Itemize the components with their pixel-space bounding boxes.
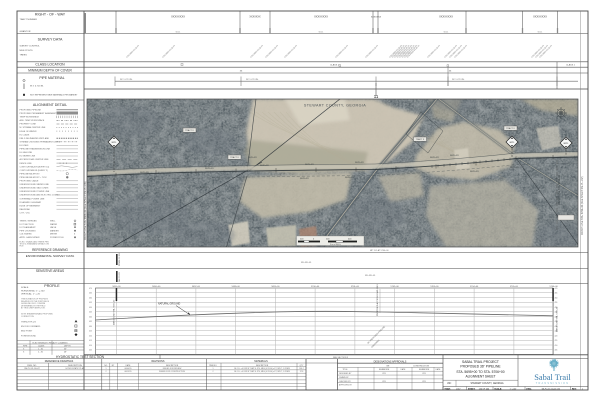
svg-text:561.1: 561.1	[319, 31, 324, 33]
svg-text:MILE POSTS: MILE POSTS	[20, 50, 34, 52]
svg-text:WL-WL-01: WL-WL-01	[365, 275, 376, 277]
svg-text:PROPOSED CABLE: PROPOSED CABLE	[20, 180, 40, 183]
svg-text:430: 430	[89, 326, 92, 328]
svg-text:W.T. 0.713 IN.: W.T. 0.713 IN.	[30, 86, 44, 88]
svg-text:ENVIRONMENTAL SURVEY DATA: ENVIRONMENTAL SURVEY DATA	[26, 254, 75, 258]
svg-text:REFERENCE DRAWING: REFERENCE DRAWING	[32, 248, 68, 252]
svg-text:CITY / LTD.: CITY / LTD.	[20, 213, 31, 215]
svg-text:136 OF 466: 136 OF 466	[479, 388, 490, 390]
svg-text:ELEV. MINIMUM 3 PENALTY CLEARI: ELEV. MINIMUM 3 PENALTY CLEARING	[33, 341, 68, 344]
svg-text:MATCH LINE STA. 5706+00: MATCH LINE STA. 5706+00	[556, 306, 559, 332]
svg-text:5699+00: 5699+00	[271, 286, 280, 288]
svg-text:ALIGNMENT DETAIL: ALIGNMENT DETAIL	[33, 103, 67, 107]
svg-text:SA-XX-001: SA-XX-001	[118, 271, 121, 282]
svg-text:405: 405	[555, 350, 558, 352]
svg-text:SCALE:: SCALE:	[494, 387, 502, 390]
svg-text:ISSUED FOR CONSTRUCTION: ISSUED FOR CONSTRUCTION	[159, 371, 186, 373]
svg-text:RIGHT - OF - WAY: RIGHT - OF - WAY	[35, 13, 66, 17]
svg-text:PIPE CROSSING: PIPE CROSSING	[20, 230, 37, 232]
svg-text:VERTICAL: 1" = 20': VERTICAL: 1" = 20'	[21, 293, 41, 296]
svg-text:CLASS 1: CLASS 1	[566, 63, 576, 66]
svg-text:ALIGNMENT SHEET: ALIGNMENT SHEET	[465, 374, 495, 378]
svg-text:TITLE: TITLE	[343, 369, 349, 371]
svg-text:FOREGROUND: FOREGROUND	[21, 335, 37, 337]
svg-text:PROPOSED ACCESS ROAD XING: PROPOSED ACCESS ROAD XING	[376, 284, 379, 316]
svg-text:425: 425	[89, 331, 92, 333]
svg-text:SIGNATURE: SIGNATURE	[379, 368, 390, 371]
svg-text:XXXXXXXX: XXXXXXXX	[533, 15, 547, 19]
svg-text:EDGE OF WATER: EDGE OF WATER	[20, 130, 37, 133]
svg-text:EL SEWER LINE: EL SEWER LINE	[20, 156, 36, 158]
svg-text:FENCE LINE: FENCE LINE	[20, 163, 33, 165]
svg-text:Sabal Trail: Sabal Trail	[534, 373, 571, 382]
svg-text:PIPELINE MILEPOST: PIPELINE MILEPOST	[20, 173, 41, 175]
svg-text:DOT EASEMENT: DOT EASEMENT	[20, 226, 37, 229]
svg-text:NOTE: BREAKERS/SAND PROPOSED: NOTE: BREAKERS/SAND PROPOSED	[21, 313, 54, 316]
svg-text:PIPE MATERIAL: PIPE MATERIAL	[39, 76, 64, 80]
svg-text:5695+00: 5695+00	[112, 286, 121, 288]
svg-text:1: 1	[213, 368, 214, 370]
svg-text:DATE: DATE	[436, 368, 441, 371]
svg-text:5701+00: 5701+00	[351, 286, 360, 288]
svg-text:SURVEY CONTROL: SURVEY CONTROL	[20, 45, 41, 47]
svg-text:DWG.: DWG.	[526, 388, 532, 390]
svg-text:OVERHEAD POWER LINE: OVERHEAD POWER LINE	[20, 197, 46, 200]
svg-text:UNDERGROUND WATER LINE: UNDERGROUND WATER LINE	[20, 183, 50, 186]
svg-text:EDGE OF PAVEMENT: EDGE OF PAVEMENT	[20, 204, 41, 207]
svg-text:CLASS: CLASS	[38, 344, 45, 347]
svg-text:W.T. 0.713 IN.: W.T. 0.713 IN.	[452, 79, 465, 81]
svg-text:420: 420	[555, 335, 558, 337]
svg-text:BY THIS CHIEF INSPECTOR.: BY THIS CHIEF INSPECTOR.	[21, 308, 46, 310]
svg-text:460: 460	[89, 297, 92, 299]
svg-text:CLASS 1: CLASS 1	[330, 63, 340, 66]
svg-text:ACCESS ROAD CENTER LINE: ACCESS ROAD CENTER LINE	[20, 158, 50, 161]
svg-text:HORIZONTAL: 1" = 200': HORIZONTAL: 1" = 200'	[21, 289, 45, 292]
svg-text:460: 460	[555, 297, 558, 299]
svg-text:TRANSMISSION: TRANSMISSION	[536, 382, 569, 385]
svg-text:XXXXXXX: XXXXXXX	[371, 17, 382, 19]
svg-text:470: 470	[89, 288, 92, 290]
svg-text:SABAL TRAIL PROJECT: SABAL TRAIL PROJECT	[462, 360, 499, 364]
svg-text:1: 1	[106, 368, 107, 370]
svg-text:MATCH LINE STA. 5695+00: MATCH LINE STA. 5695+00	[113, 299, 116, 325]
svg-text:DATE: DATE	[401, 368, 406, 371]
svg-text:POWER POLE: POWER POLE	[50, 237, 64, 239]
svg-text:MATERIALS: MATERIALS	[254, 360, 268, 363]
svg-text:465: 465	[89, 293, 92, 295]
svg-text:MARKER: MARKER	[50, 229, 59, 232]
svg-text:MP 11.5 AT 5700+00: MP 11.5 AT 5700+00	[370, 249, 389, 252]
svg-text:455: 455	[89, 302, 92, 304]
svg-text:536.7: 536.7	[299, 368, 304, 370]
svg-text:HYDROSTATIC TEST SECTION: HYDROSTATIC TEST SECTION	[56, 355, 105, 359]
svg-text:W.T. 0.713 IN.: W.T. 0.713 IN.	[246, 79, 259, 81]
svg-text:CULTIVATED: CULTIVATED	[20, 233, 33, 236]
svg-text:06/04/15: 06/04/15	[125, 368, 132, 370]
svg-text:NOT REPRESENT NEW MATERIALS PE: NOT REPRESENT NEW MATERIALS PER MARKET	[30, 94, 78, 97]
svg-text:TREES: TREES	[20, 55, 28, 57]
svg-text:37.8: 37.8	[300, 371, 304, 373]
svg-text:465: 465	[555, 293, 558, 295]
svg-text:FIELD DELINEATED WETLAND: FIELD DELINEATED WETLAND	[20, 137, 50, 140]
svg-text:470: 470	[555, 288, 558, 290]
svg-text:TRACT NUMBER: TRACT NUMBER	[20, 18, 38, 21]
svg-text:MINIMUM DEPTH OF COVER: MINIMUM DEPTH OF COVER	[28, 68, 72, 72]
svg-text:410: 410	[89, 345, 92, 347]
svg-text:06/19/15: 06/19/15	[125, 371, 132, 373]
svg-text:EN ROD FORWARD: EN ROD FORWARD	[21, 325, 41, 328]
svg-text:PIPELINE TRANSMISSION LINE: PIPELINE TRANSMISSION LINE	[20, 148, 51, 151]
svg-text:STA. 5695+00 TO STA. 5706+00: STA. 5695+00 TO STA. 5706+00	[456, 370, 504, 374]
svg-text:5696+00: 5696+00	[152, 286, 161, 288]
svg-text:x x x: x x x	[60, 162, 68, 165]
svg-text:2: 2	[106, 371, 107, 373]
svg-text:SHEET:: SHEET:	[468, 388, 476, 390]
svg-text:405: 405	[89, 350, 92, 352]
svg-text:PDWS-XX-001: PDWS-XX-001	[119, 252, 121, 266]
svg-text:APPD. LANDOWNER: APPD. LANDOWNER	[20, 236, 41, 239]
svg-text:450: 450	[89, 307, 92, 309]
svg-text:DESIGNATIONS APPROVALS: DESIGNATIONS APPROVALS	[374, 361, 407, 364]
svg-text:415: 415	[555, 340, 558, 342]
svg-text:440: 440	[89, 316, 92, 318]
svg-text:STREAM CROSSING PERMANENT LIMI: STREAM CROSSING PERMANENT LIMITS	[20, 141, 61, 144]
svg-text:XXXXXXXX: XXXXXXXX	[314, 15, 328, 19]
svg-text:415: 415	[89, 340, 92, 342]
svg-text:36 O.D. x 0.XXX W.T. API 5L X7: 36 O.D. x 0.XXX W.T. API 5L X70, MFG (0.…	[234, 370, 290, 373]
svg-text:TEMP WORKSPACE: TEMP WORKSPACE	[20, 116, 40, 119]
svg-text:561.1: 561.1	[444, 31, 449, 33]
svg-text:CONTOUR MINOR (EVERY 2): CONTOUR MINOR (EVERY 2)	[20, 170, 49, 172]
svg-text:UNDERGROUND GAS / LINES: UNDERGROUND GAS / LINES	[20, 187, 50, 190]
svg-text:2 - 36: 2 - 36	[38, 352, 43, 354]
svg-text:XXXXXXX: XXXXXXX	[249, 16, 261, 19]
svg-text:48": 48"	[64, 352, 67, 354]
svg-text:5697+00: 5697+00	[192, 286, 201, 288]
svg-text:CONTOUR MAJOR (EVERY 10): CONTOUR MAJOR (EVERY 10)	[20, 165, 50, 168]
svg-text:DOT SECTION: DOT SECTION	[20, 224, 34, 226]
svg-text:XXXXXXXX: XXXXXXXX	[439, 15, 453, 19]
svg-text:BND POINT: BND POINT	[21, 331, 33, 333]
svg-text:REVISIONS: REVISIONS	[151, 360, 164, 363]
svg-text:STEWART COUNTY, GEORGIA: STEWART COUNTY, GEORGIA	[470, 382, 504, 385]
svg-text:1 - 36: 1 - 36	[38, 348, 43, 350]
svg-text:YEAR:: YEAR:	[444, 387, 451, 390]
svg-text:PIPELINE MILEPOST + TICK: PIPELINE MILEPOST + TICK	[20, 177, 48, 179]
svg-text:WL-WL-01: WL-WL-01	[301, 262, 312, 264]
svg-text:SURVEY DATA: SURVEY DATA	[38, 38, 63, 42]
svg-text:CORRECTION: CORRECTION	[21, 316, 34, 318]
svg-text:5704+00: 5704+00	[470, 286, 479, 288]
svg-text:CLASS LOCATION: CLASS LOCATION	[35, 63, 65, 67]
svg-text:PROPOSED PERMANENT EASEMENT: PROPOSED PERMANENT EASEMENT	[20, 112, 58, 115]
svg-text:DESIGNED BY: DESIGNED BY	[339, 373, 352, 375]
svg-text:EL CLASS: EL CLASS	[20, 133, 30, 136]
svg-text:TITLE & STANDARD DETAILS ON: TITLE & STANDARD DETAILS ON	[20, 243, 50, 246]
svg-text:SM-PL-GO-10-047-136: SM-PL-GO-10-047-136	[542, 388, 560, 390]
svg-text:VALVE: VALVE	[50, 226, 57, 229]
svg-text:435: 435	[89, 321, 92, 323]
svg-text:SENSITIVE AREAS: SENSITIVE AREAS	[36, 269, 64, 273]
svg-text:5700+00: 5700+00	[311, 286, 320, 288]
svg-text:REV:: REV:	[572, 388, 577, 390]
svg-text:EL LINES: EL LINES	[20, 145, 30, 147]
svg-text:PIPE: PIPE	[23, 345, 28, 347]
svg-text:APPROVED BY: APPROVED BY	[339, 384, 353, 387]
svg-text:455: 455	[555, 302, 558, 304]
svg-text:5703+00: 5703+00	[430, 286, 439, 288]
svg-text:ADD. TEMP WORKSPACE: ADD. TEMP WORKSPACE	[20, 119, 45, 122]
svg-text:ROADWAY / HIGHWAY: ROADWAY / HIGHWAY	[20, 201, 42, 204]
svg-text:NATURAL GROUND: NATURAL GROUND	[158, 303, 180, 306]
svg-text:TREES / SHRUBS: TREES / SHRUBS	[20, 221, 38, 223]
svg-text:WATER: WATER	[50, 223, 58, 226]
svg-text:410: 410	[555, 345, 558, 347]
svg-text:WELL: WELL	[50, 221, 56, 223]
svg-text:RAILROAD: RAILROAD	[20, 208, 31, 211]
svg-text:XXXXXXXX: XXXXXXXX	[171, 15, 185, 19]
svg-text:MATCH LINE STA. 5695+00 (SEE S: MATCH LINE STA. 5695+00 (SEE SHEET SM-PL…	[84, 181, 87, 240]
svg-text:W.T. 0.713 IN.: W.T. 0.713 IN.	[120, 79, 133, 81]
svg-text:561.1: 561.1	[538, 31, 543, 33]
svg-text:UNDERGROUND AND ELECTRIC COMBO: UNDERGROUND AND ELECTRIC COMBO	[20, 194, 61, 197]
svg-text:TRENCH PLUG: TRENCH PLUG	[21, 322, 36, 324]
svg-text:REFERENCE DRAWINGS: REFERENCE DRAWINGS	[45, 360, 74, 363]
svg-text:METER: METER	[50, 234, 58, 236]
svg-text:445: 445	[89, 312, 92, 314]
svg-text:DRAWN BY: DRAWN BY	[339, 376, 349, 379]
svg-text:DEPTH: DEPTH	[64, 345, 71, 347]
svg-text:5702+00: 5702+00	[391, 286, 400, 288]
svg-text:PROPOSED PIPELINE: PROPOSED PIPELINE	[20, 110, 42, 112]
svg-text:GRANTOR: GRANTOR	[20, 30, 31, 33]
svg-text:5698+00: 5698+00	[232, 286, 241, 288]
svg-text:1" = 200': 1" = 200'	[510, 388, 518, 390]
svg-text:561.1: 561.1	[176, 31, 181, 33]
svg-text:PROPERTY LINE: PROPERTY LINE	[20, 124, 37, 126]
svg-text:2: 2	[213, 371, 214, 373]
svg-text:SIGNATURE: SIGNATURE	[419, 368, 430, 371]
svg-text:11: 11	[374, 94, 379, 99]
svg-text:CHECKED BY: CHECKED BY	[339, 381, 351, 383]
svg-text:PROFILE: PROFILE	[44, 284, 60, 288]
svg-text:ISSUED FOR REVIEW: ISSUED FOR REVIEW	[163, 368, 182, 370]
svg-text:5705+00: 5705+00	[510, 286, 519, 288]
svg-text:36 O.D. x 0.XXX W.T. API 5L X7: 36 O.D. x 0.XXX W.T. API 5L X70, MFG (0.…	[234, 367, 290, 370]
svg-text:PROPOSED 36" PIPELINE: PROPOSED 36" PIPELINE	[460, 365, 501, 369]
svg-text:EL GAS LINE: EL GAS LINE	[20, 151, 33, 154]
svg-text:SEE SECTION 3: SEE SECTION 3	[333, 357, 349, 359]
svg-text:UNDERGROUND POWER LINE: UNDERGROUND POWER LINE	[20, 191, 50, 193]
svg-text:420: 420	[89, 335, 92, 337]
svg-text:SCALE:: SCALE:	[21, 286, 29, 289]
svg-text:36": 36"	[64, 348, 67, 350]
svg-text:MATCH LINE STA. 5706+00 (SEE S: MATCH LINE STA. 5706+00 (SEE SHEET SM-PL…	[581, 176, 584, 235]
svg-text:USI:: USI:	[447, 383, 452, 385]
svg-text:N / STREAM CENTER LINE: N / STREAM CENTER LINE	[20, 126, 46, 129]
